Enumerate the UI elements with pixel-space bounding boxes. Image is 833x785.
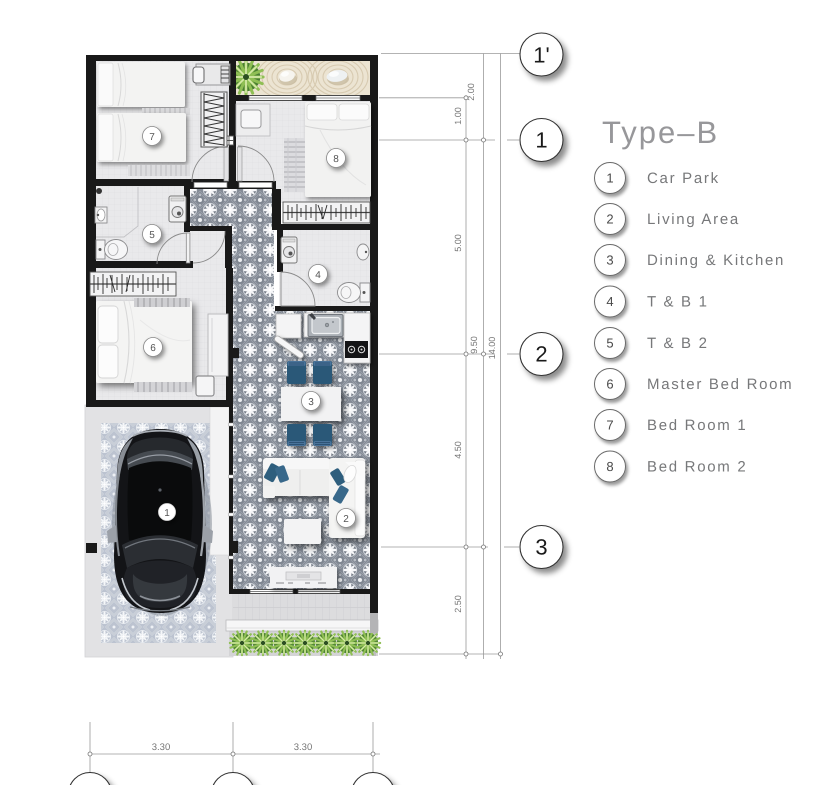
svg-text:7: 7	[149, 132, 155, 143]
svg-text:6: 6	[606, 377, 613, 392]
svg-text:5: 5	[149, 230, 155, 241]
svg-text:2: 2	[343, 514, 349, 525]
svg-text:8: 8	[606, 459, 613, 474]
svg-text:4: 4	[606, 294, 613, 309]
svg-text:1': 1'	[533, 43, 549, 68]
svg-text:4: 4	[315, 270, 321, 281]
svg-text:T & B 1: T & B 1	[647, 294, 709, 311]
svg-text:2: 2	[535, 342, 547, 367]
svg-text:3.30: 3.30	[152, 742, 171, 753]
svg-text:1: 1	[535, 128, 547, 153]
svg-text:1: 1	[164, 508, 170, 519]
svg-text:3: 3	[308, 397, 314, 408]
svg-text:Bed Room 2: Bed Room 2	[647, 459, 747, 476]
svg-text:2.00: 2.00	[466, 83, 476, 101]
svg-text:8: 8	[333, 154, 339, 165]
svg-text:1: 1	[606, 171, 613, 186]
svg-text:Master Bed Room: Master Bed Room	[647, 376, 793, 393]
svg-text:14.00: 14.00	[487, 337, 497, 360]
svg-text:1.00: 1.00	[453, 107, 463, 125]
svg-text:3: 3	[535, 535, 547, 560]
svg-text:Living Area: Living Area	[647, 211, 740, 228]
svg-text:Bed Room 1: Bed Room 1	[647, 417, 747, 434]
svg-text:3: 3	[606, 253, 613, 268]
svg-text:Type–B: Type–B	[602, 115, 719, 150]
svg-text:6: 6	[150, 343, 156, 354]
svg-text:9.50: 9.50	[469, 336, 479, 354]
svg-text:4.50: 4.50	[453, 441, 463, 459]
svg-text:2: 2	[606, 212, 613, 227]
svg-text:7: 7	[606, 418, 613, 433]
svg-text:2.50: 2.50	[453, 595, 463, 613]
svg-text:5.00: 5.00	[453, 234, 463, 252]
svg-text:Car Park: Car Park	[647, 170, 720, 187]
svg-text:T & B 2: T & B 2	[647, 335, 709, 352]
svg-text:Dining & Kitchen: Dining & Kitchen	[647, 252, 785, 269]
svg-text:3.30: 3.30	[294, 742, 313, 753]
svg-text:5: 5	[606, 336, 613, 351]
